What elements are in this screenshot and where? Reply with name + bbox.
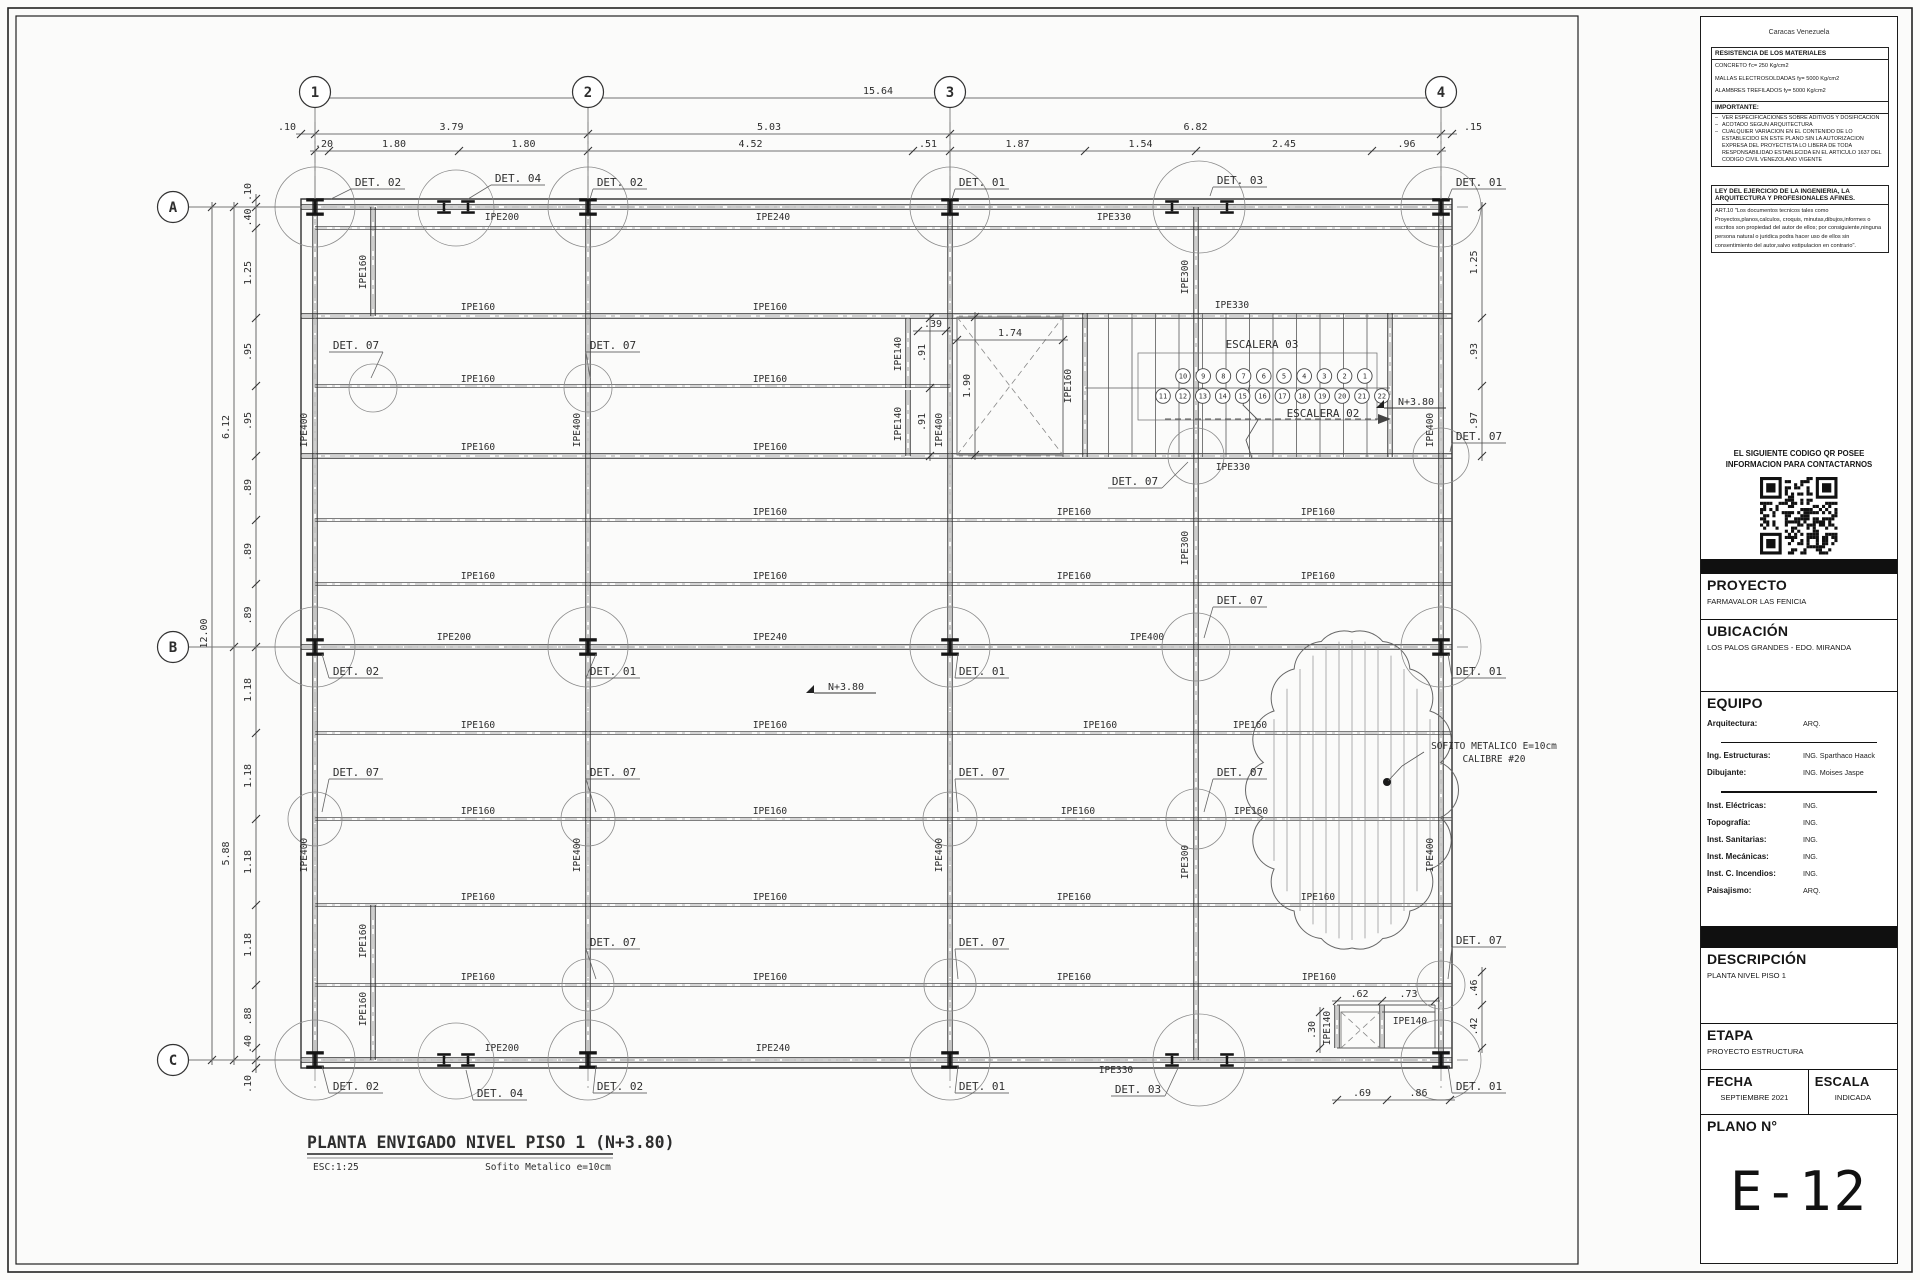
beam-label: IPE160: [753, 972, 788, 983]
dimension: 1.87: [1005, 139, 1029, 150]
drawing-title: PLANTA ENVIGADO NIVEL PISO 1 (N+3.80)ESC…: [307, 1133, 675, 1173]
grid-bubble-row: C: [169, 1053, 177, 1069]
dimension: 5.88: [221, 841, 232, 865]
beam-label: IPE400: [1130, 632, 1165, 643]
detail-label: DET. 07: [1456, 934, 1502, 947]
beam-label: IPE160: [358, 992, 369, 1027]
equipo-rows: Arquitectura:ARQ.Ing. Estructuras:ING. S…: [1701, 711, 1897, 903]
detail-label: DET. 04: [477, 1087, 524, 1100]
equipo-person: ARQ.: [1803, 886, 1821, 895]
dimension: 1.80: [511, 139, 535, 150]
equipo-person: ING.: [1803, 818, 1818, 827]
stair-step-number: 18: [1298, 393, 1306, 401]
qr-code: [1701, 477, 1897, 557]
bullet-dash: –: [1715, 115, 1722, 122]
stair-step-number: 3: [1322, 373, 1326, 381]
level-mark: N+3.80: [828, 682, 864, 693]
detail-label: DET. 01: [1456, 665, 1502, 678]
dimension: 1.80: [382, 139, 406, 150]
beam-label: IPE160: [753, 374, 788, 385]
beam-label: IPE160: [1063, 369, 1074, 404]
soffit-note: CALIBRE #20: [1463, 754, 1526, 765]
etapa-value: PROYECTO ESTRUCTURA: [1701, 1043, 1897, 1056]
beam-label: IPE240: [753, 632, 788, 643]
soffit-note: SOFITO METALICO E=10cm: [1431, 741, 1557, 752]
dimension: .93: [1469, 343, 1480, 361]
beam-label: IPE400: [572, 413, 583, 448]
beam-label: IPE400: [934, 838, 945, 873]
detail-label: DET. 04: [495, 172, 542, 185]
detail-label: DET. 01: [959, 176, 1005, 189]
equipo-role: Dibujante:: [1707, 768, 1803, 777]
ley-title: LEY DEL EJERCICIO DE LA INGENIERIA, LA A…: [1712, 186, 1888, 205]
dimension: .96: [1397, 139, 1415, 150]
dimension: 12.00: [199, 618, 210, 648]
qr-caption: EL SIGUIENTE CODIGO QR POSEE INFORMACION…: [1701, 449, 1897, 470]
descripcion-label: DESCRIPCIÓN: [1701, 948, 1897, 967]
stair-label: ESCALERA 02: [1287, 407, 1360, 420]
dimension: 5.03: [757, 122, 781, 133]
detail-label: DET. 07: [959, 766, 1005, 779]
dimension: .46: [1469, 979, 1480, 997]
materials-title: RESISTENCIA DE LOS MATERIALES: [1712, 48, 1888, 60]
beam-label: IPE300: [1180, 260, 1191, 295]
stair-step-number: 11: [1159, 393, 1167, 401]
detail-labels: DET. 02DET. 04DET. 02DET. 01DET. 03DET. …: [322, 172, 1506, 1100]
equipo-row: Inst. Sanitarias:ING.: [1707, 835, 1891, 852]
dimension: 1.18: [243, 933, 254, 957]
bullet-dash: –: [1715, 122, 1722, 129]
equipo-person: ING.: [1803, 869, 1818, 878]
dimension: .89: [243, 606, 254, 624]
equipo-person: ING. Sparthaco Haack: [1803, 751, 1875, 760]
beam-label: IPE300: [1180, 531, 1191, 566]
dimension: 1.74: [998, 328, 1022, 339]
dimension: .95: [243, 412, 254, 430]
importante-box: IMPORTANTE: –VER ESPECIFICACIONES SOBRE …: [1711, 101, 1889, 167]
beam-label: IPE330: [1215, 300, 1250, 311]
proyecto-value: FARMAVALOR LAS FENICIA: [1701, 593, 1897, 606]
dimension: 1.90: [962, 374, 973, 398]
plan-drawing: 10987654321111213141516171819202122ESCAL…: [0, 0, 1920, 1280]
qr-caption-line2: INFORMACION PARA CONTACTARNOS: [1701, 460, 1897, 471]
beam-label: IPE400: [934, 413, 945, 448]
beam-label: IPE160: [1233, 720, 1268, 731]
proyecto-label: PROYECTO: [1701, 574, 1897, 593]
detail-label: DET. 01: [590, 665, 636, 678]
dimension: 1.25: [1469, 250, 1480, 274]
dimension: .69: [1353, 1088, 1371, 1099]
stair-step-number: 9: [1201, 373, 1205, 381]
beam-label: IPE160: [1057, 507, 1092, 518]
equipo-row: Arquitectura:ARQ.: [1707, 719, 1891, 736]
dimension: 1.18: [243, 850, 254, 874]
detail-label: DET. 07: [1217, 594, 1263, 607]
material-line: MALLAS ELECTROSOLDADAS fy= 5000 Kg/cm2: [1712, 73, 1888, 86]
city-label: Caracas Venezuela: [1701, 21, 1897, 43]
detail-label: DET. 01: [1456, 176, 1502, 189]
beam-label: IPE160: [1234, 806, 1269, 817]
equipo-row: Ing. Estructuras:ING. Sparthaco Haack: [1707, 751, 1891, 768]
stair-step-number: 4: [1302, 373, 1306, 381]
grid-bubble-row: B: [169, 640, 177, 656]
dimension: .62: [1350, 989, 1368, 1000]
dimension: .86: [1409, 1088, 1427, 1099]
dimension: .10: [278, 122, 296, 133]
descripcion-section: DESCRIPCIÓN PLANTA NIVEL PISO 1: [1701, 948, 1897, 1023]
beam-label: IPE200: [485, 1043, 520, 1054]
stair-step-number: 20: [1338, 393, 1346, 401]
equipo-person: ING.: [1803, 835, 1818, 844]
dimension: .51: [919, 139, 937, 150]
dimension: .15: [1464, 122, 1482, 133]
stairs: 10987654321111213141516171819202122ESCAL…: [1085, 313, 1391, 458]
beam-label: IPE160: [461, 571, 496, 582]
dimension: 3.79: [439, 122, 463, 133]
importante-item: –ACOTADO SEGUN ARQUITECTURA: [1712, 122, 1888, 129]
plano-label: PLANO N°: [1701, 1115, 1897, 1134]
equipo-role: Paisajismo:: [1707, 886, 1803, 895]
beam-label: IPE200: [437, 632, 472, 643]
equipo-role: Ing. Estructuras:: [1707, 751, 1803, 760]
stair-step-number: 21: [1358, 393, 1366, 401]
escala-cell: ESCALA INDICADA: [1809, 1070, 1897, 1114]
equipo-role: Arquitectura:: [1707, 719, 1803, 728]
beam-label: IPE300: [1180, 845, 1191, 880]
detail-label: DET. 07: [1217, 766, 1263, 779]
dimension: .40: [243, 208, 254, 226]
beam-label: IPE160: [1301, 892, 1336, 903]
openings: [957, 317, 1380, 1048]
fecha-label: FECHA: [1701, 1072, 1808, 1089]
detail-label: DET. 07: [959, 936, 1005, 949]
grid-bubble-col: 4: [1437, 85, 1445, 101]
dimension: .20: [315, 139, 333, 150]
beam-label: IPE160: [1083, 720, 1118, 731]
detail-label: DET. 07: [333, 766, 379, 779]
importante-item: –VER ESPECIFICACIONES SOBRE ADITIVOS Y D…: [1712, 115, 1888, 122]
beam-label: IPE160: [461, 374, 496, 385]
level-mark: N+3.80: [1398, 397, 1434, 408]
beam-label: IPE160: [358, 255, 369, 290]
stair-label: ESCALERA 03: [1226, 338, 1299, 351]
importante-text: VER ESPECIFICACIONES SOBRE ADITIVOS Y DO…: [1722, 115, 1879, 122]
dimension: .91: [917, 344, 928, 362]
detail-label: DET. 03: [1217, 174, 1263, 187]
stair-step-number: 10: [1179, 373, 1187, 381]
equipo-role: Inst. Eléctricas:: [1707, 801, 1803, 810]
detail-label: DET. 07: [590, 766, 636, 779]
beam-label: IPE160: [461, 806, 496, 817]
beam-label: IPE330: [1099, 1065, 1134, 1076]
stair-step-number: 17: [1278, 393, 1286, 401]
importante-list: –VER ESPECIFICACIONES SOBRE ADITIVOS Y D…: [1712, 114, 1888, 166]
dimension: .95: [243, 343, 254, 361]
stair-step-number: 14: [1218, 393, 1226, 401]
detail-label: DET. 02: [333, 665, 379, 678]
dimension: 1.18: [243, 678, 254, 702]
beam-label: IPE160: [753, 442, 788, 453]
plan-note: Sofito Metalico e=10cm: [485, 1162, 611, 1173]
equipo-role: Inst. Mecánicas:: [1707, 852, 1803, 861]
detail-label: DET. 02: [597, 176, 643, 189]
beam-label: IPE160: [753, 302, 788, 313]
stair-step-number: 7: [1241, 373, 1245, 381]
dimension: 4.52: [738, 139, 762, 150]
dimension: 15.64: [863, 86, 893, 97]
beam-label: IPE160: [358, 924, 369, 959]
stair-step-number: 1: [1363, 373, 1367, 381]
dimension: 6.82: [1183, 122, 1207, 133]
dimension: 2.45: [1272, 139, 1296, 150]
bullet-dash: –: [1715, 129, 1722, 164]
equipo-divider: [1721, 742, 1877, 743]
grid-bubble-col: 2: [584, 85, 592, 101]
detail-label: DET. 02: [597, 1080, 643, 1093]
beam-label: IPE200: [485, 212, 520, 223]
equipo-person: ING.: [1803, 852, 1818, 861]
plan-title: PLANTA ENVIGADO NIVEL PISO 1 (N+3.80): [307, 1133, 675, 1152]
beam-label: IPE160: [1301, 507, 1336, 518]
detail-label: DET. 03: [1115, 1083, 1161, 1096]
beam-label: IPE160: [1057, 972, 1092, 983]
beam-label: IPE140: [1393, 1016, 1428, 1027]
divider-bar: [1701, 559, 1897, 573]
equipo-row: Inst. C. Incendios:ING.: [1707, 869, 1891, 886]
grid-lines: [188, 122, 1468, 1088]
qr-caption-line1: EL SIGUIENTE CODIGO QR POSEE: [1701, 449, 1897, 460]
stair-step-number: 8: [1221, 373, 1225, 381]
dimension: .42: [1469, 1017, 1480, 1035]
plano-section: PLANO N° E-12: [1701, 1114, 1897, 1263]
fecha-value: SEPTIEMBRE 2021: [1701, 1089, 1808, 1102]
beam-label: IPE140: [1322, 1011, 1333, 1046]
stair-step-number: 2: [1342, 373, 1346, 381]
equipo-label: EQUIPO: [1701, 692, 1897, 711]
beam-label: IPE240: [756, 1043, 791, 1054]
equipo-row: Paisajismo:ARQ.: [1707, 886, 1891, 903]
dimension: .10: [243, 1075, 254, 1093]
beam-label: IPE140: [893, 407, 904, 442]
drawing-sheet: 10987654321111213141516171819202122ESCAL…: [0, 0, 1920, 1280]
detail-label: DET. 01: [959, 665, 1005, 678]
dimension: .40: [243, 1035, 254, 1053]
stair-step-number: 22: [1378, 393, 1386, 401]
grid-bubble-row: A: [169, 200, 178, 216]
beam-label: IPE330: [1216, 462, 1251, 473]
stair-step-number: 15: [1238, 393, 1246, 401]
beam-label: IPE160: [753, 892, 788, 903]
etapa-label: ETAPA: [1701, 1024, 1897, 1043]
beam-label: IPE400: [1425, 838, 1436, 873]
importante-text: ACOTADO SEGUN ARQUITECTURA: [1722, 122, 1813, 129]
equipo-person: ING.: [1803, 801, 1818, 810]
descripcion-value: PLANTA NIVEL PISO 1: [1701, 967, 1897, 980]
fecha-escala-row: FECHA SEPTIEMBRE 2021 ESCALA INDICADA: [1701, 1069, 1897, 1114]
dimension: .89: [243, 543, 254, 561]
beam-label: IPE240: [756, 212, 791, 223]
beam-label: IPE160: [753, 720, 788, 731]
equipo-role: Topografía:: [1707, 818, 1803, 827]
beam-label: IPE160: [461, 302, 496, 313]
detail-label: DET. 07: [1112, 475, 1158, 488]
dimension: .91: [917, 413, 928, 431]
dimension: .97: [1469, 412, 1480, 430]
importante-title: IMPORTANTE:: [1712, 102, 1888, 114]
equipo-row: Dibujante:ING. Moises Jaspe: [1707, 768, 1891, 785]
beam-label: IPE160: [1057, 892, 1092, 903]
grid-bubble-col: 3: [946, 85, 954, 101]
beam-label: IPE160: [461, 892, 496, 903]
dimension: 1.25: [243, 261, 254, 285]
equipo-person: ARQ.: [1803, 719, 1821, 728]
beams: [301, 199, 1452, 1068]
etapa-section: ETAPA PROYECTO ESTRUCTURA: [1701, 1023, 1897, 1069]
dimension: .89: [243, 479, 254, 497]
dimension: 6.12: [221, 415, 232, 439]
equipo-role: Inst. Sanitarias:: [1707, 835, 1803, 844]
importante-item: –CUALQUIER VARIACION EN EL CONTENIDO DE …: [1712, 129, 1888, 164]
proyecto-section: PROYECTO FARMAVALOR LAS FENICIA: [1701, 573, 1897, 619]
beam-label: IPE330: [1097, 212, 1132, 223]
detail-label: DET. 02: [333, 1080, 379, 1093]
equipo-divider: [1721, 791, 1877, 792]
beam-label: IPE140: [893, 337, 904, 372]
stair-step-number: 12: [1179, 393, 1187, 401]
stair-step-number: 5: [1282, 373, 1286, 381]
ubicacion-value: LOS PALOS GRANDES - EDO. MIRANDA: [1701, 639, 1897, 652]
stair-step-number: 13: [1199, 393, 1207, 401]
ubicacion-section: UBICACIÓN LOS PALOS GRANDES - EDO. MIRAN…: [1701, 619, 1897, 691]
dimensions: 15.64.103.795.036.82.15.201.801.804.52.5…: [199, 86, 1486, 1104]
detail-label: DET. 07: [590, 339, 636, 352]
beam-label: IPE400: [572, 838, 583, 873]
stair-step-number: 16: [1258, 393, 1266, 401]
plan-scale: ESC:1:25: [313, 1162, 359, 1173]
beam-label: IPE160: [461, 972, 496, 983]
ley-box: LEY DEL EJERCICIO DE LA INGENIERIA, LA A…: [1711, 185, 1889, 253]
beam-label: IPE160: [1302, 972, 1337, 983]
beam-label: IPE400: [299, 838, 310, 873]
beam-label: IPE160: [1057, 571, 1092, 582]
detail-label: DET. 07: [333, 339, 379, 352]
escala-label: ESCALA: [1809, 1072, 1897, 1089]
beam-label: IPE160: [753, 806, 788, 817]
equipo-row: Topografía:ING.: [1707, 818, 1891, 835]
dimension: 1.54: [1128, 139, 1152, 150]
beam-label: IPE400: [299, 413, 310, 448]
columns: [306, 198, 1450, 1069]
equipo-role: Inst. C. Incendios:: [1707, 869, 1803, 878]
beam-label: IPE160: [1301, 571, 1336, 582]
qr-image: [1760, 477, 1838, 555]
beam-label: IPE160: [1061, 806, 1096, 817]
beam-label: IPE160: [753, 571, 788, 582]
importante-text: CUALQUIER VARIACION EN EL CONTENIDO DE L…: [1722, 129, 1885, 164]
dimension: .30: [1307, 1021, 1318, 1039]
equipo-person: ING. Moises Jaspe: [1803, 768, 1864, 777]
beam-label: IPE400: [1425, 413, 1436, 448]
detail-label: DET. 01: [959, 1080, 1005, 1093]
equipo-row: Inst. Mecánicas:ING.: [1707, 852, 1891, 869]
detail-label: DET. 01: [1456, 1080, 1502, 1093]
dimension: .73: [1399, 989, 1417, 1000]
beam-label: IPE160: [753, 507, 788, 518]
detail-label: DET. 07: [1456, 430, 1502, 443]
slab-outline: [301, 199, 1452, 1068]
dimension: .88: [243, 1007, 254, 1025]
equipo-row: Inst. Eléctricas:ING.: [1707, 801, 1891, 818]
plano-number: E-12: [1701, 1160, 1897, 1223]
ley-body: ART.10 "Los documentos tecnicos tales co…: [1712, 205, 1888, 252]
beam-label: IPE160: [461, 442, 496, 453]
dimension: .10: [243, 183, 254, 201]
escala-value: INDICADA: [1809, 1089, 1897, 1102]
beam-label: IPE160: [461, 720, 496, 731]
stair-step-number: 6: [1262, 373, 1266, 381]
ubicacion-label: UBICACIÓN: [1701, 620, 1897, 639]
title-block: Caracas Venezuela RESISTENCIA DE LOS MAT…: [1700, 16, 1898, 1264]
equipo-section: EQUIPO Arquitectura:ARQ.Ing. Estructuras…: [1701, 691, 1897, 926]
dimension: 1.18: [243, 764, 254, 788]
material-line: CONCRETO f'c= 250 Kg/cm2: [1712, 60, 1888, 73]
detail-label: DET. 07: [590, 936, 636, 949]
material-line: ALAMBRES TREFILADOS fy= 5000 Kg/cm2: [1712, 85, 1888, 98]
detail-label: DET. 02: [355, 176, 401, 189]
revision-cloud: SOFITO METALICO E=10cmCALIBRE #20: [1246, 631, 1558, 949]
divider-bar: [1701, 926, 1897, 948]
grid-bubble-col: 1: [311, 85, 319, 101]
stair-step-number: 19: [1318, 393, 1326, 401]
fecha-cell: FECHA SEPTIEMBRE 2021: [1701, 1070, 1809, 1114]
